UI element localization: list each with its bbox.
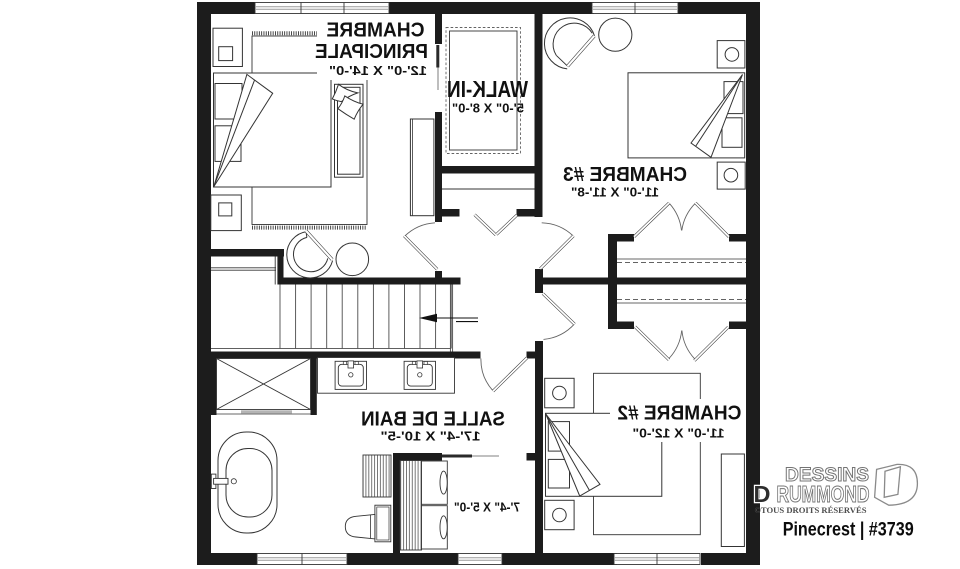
- svg-text:5'-0" X 8'-0": 5'-0" X 8'-0": [452, 101, 524, 116]
- svg-text:CHAMBRE #3: CHAMBRE #3: [563, 164, 687, 186]
- svg-text:7'-4" X 5'-0": 7'-4" X 5'-0": [454, 501, 520, 515]
- svg-text:WALK-IN: WALK-IN: [447, 76, 528, 102]
- svg-text:Pinecrest | #3739: Pinecrest | #3739: [783, 518, 914, 540]
- svg-text:D: D: [754, 481, 771, 507]
- svg-text:CHAMBRE #2: CHAMBRE #2: [617, 402, 741, 424]
- svg-text:CHAMBRE: CHAMBRE: [327, 19, 425, 42]
- svg-text:RUMMOND: RUMMOND: [777, 481, 870, 507]
- svg-text:PRINCIPALE: PRINCIPALE: [315, 40, 428, 63]
- svg-text:SALLE DE BAIN: SALLE DE BAIN: [361, 408, 505, 431]
- svg-text:17'-4" X 10'-5": 17'-4" X 10'-5": [381, 428, 481, 443]
- svg-text:11'-0" X 12'-0": 11'-0" X 12'-0": [633, 425, 725, 440]
- svg-text:©TOUS DROITS RÉSERVÉS: ©TOUS DROITS RÉSERVÉS: [755, 505, 867, 515]
- svg-text:11'-0" X 11'-8": 11'-0" X 11'-8": [571, 185, 659, 200]
- svg-text:12'-0" X 14'-0": 12'-0" X 14'-0": [329, 63, 427, 78]
